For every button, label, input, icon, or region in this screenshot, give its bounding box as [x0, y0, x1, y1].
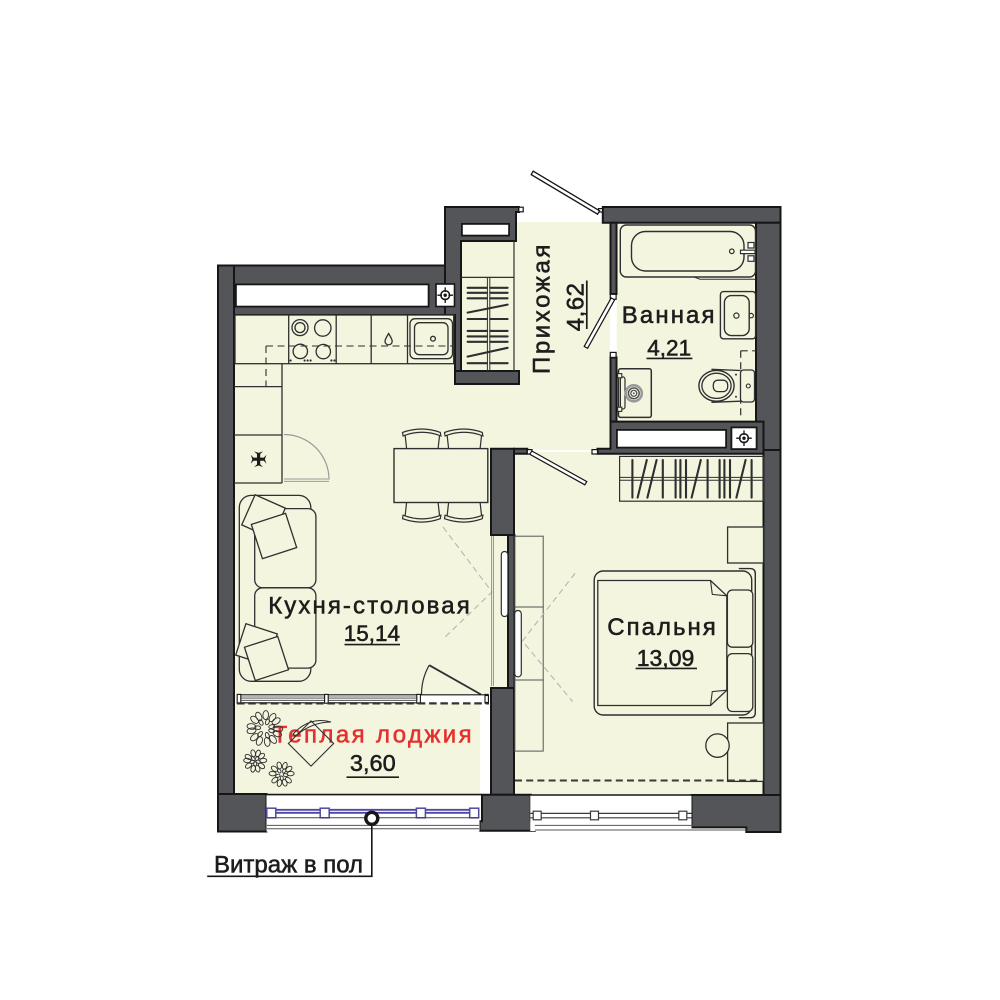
svg-text:13,09: 13,09	[637, 645, 695, 671]
svg-text:Спальня: Спальня	[607, 614, 717, 641]
svg-text:Кухня-столовая: Кухня-столовая	[268, 593, 472, 620]
svg-text:15,14: 15,14	[344, 621, 400, 646]
svg-text:Прихожая: Прихожая	[529, 242, 556, 374]
svg-text:Витраж в пол: Витраж в пол	[214, 852, 363, 879]
svg-text:4,21: 4,21	[647, 335, 691, 360]
svg-text:Ванная: Ванная	[622, 302, 717, 329]
svg-text:4,62: 4,62	[563, 283, 590, 332]
svg-text:3,60: 3,60	[350, 750, 396, 776]
